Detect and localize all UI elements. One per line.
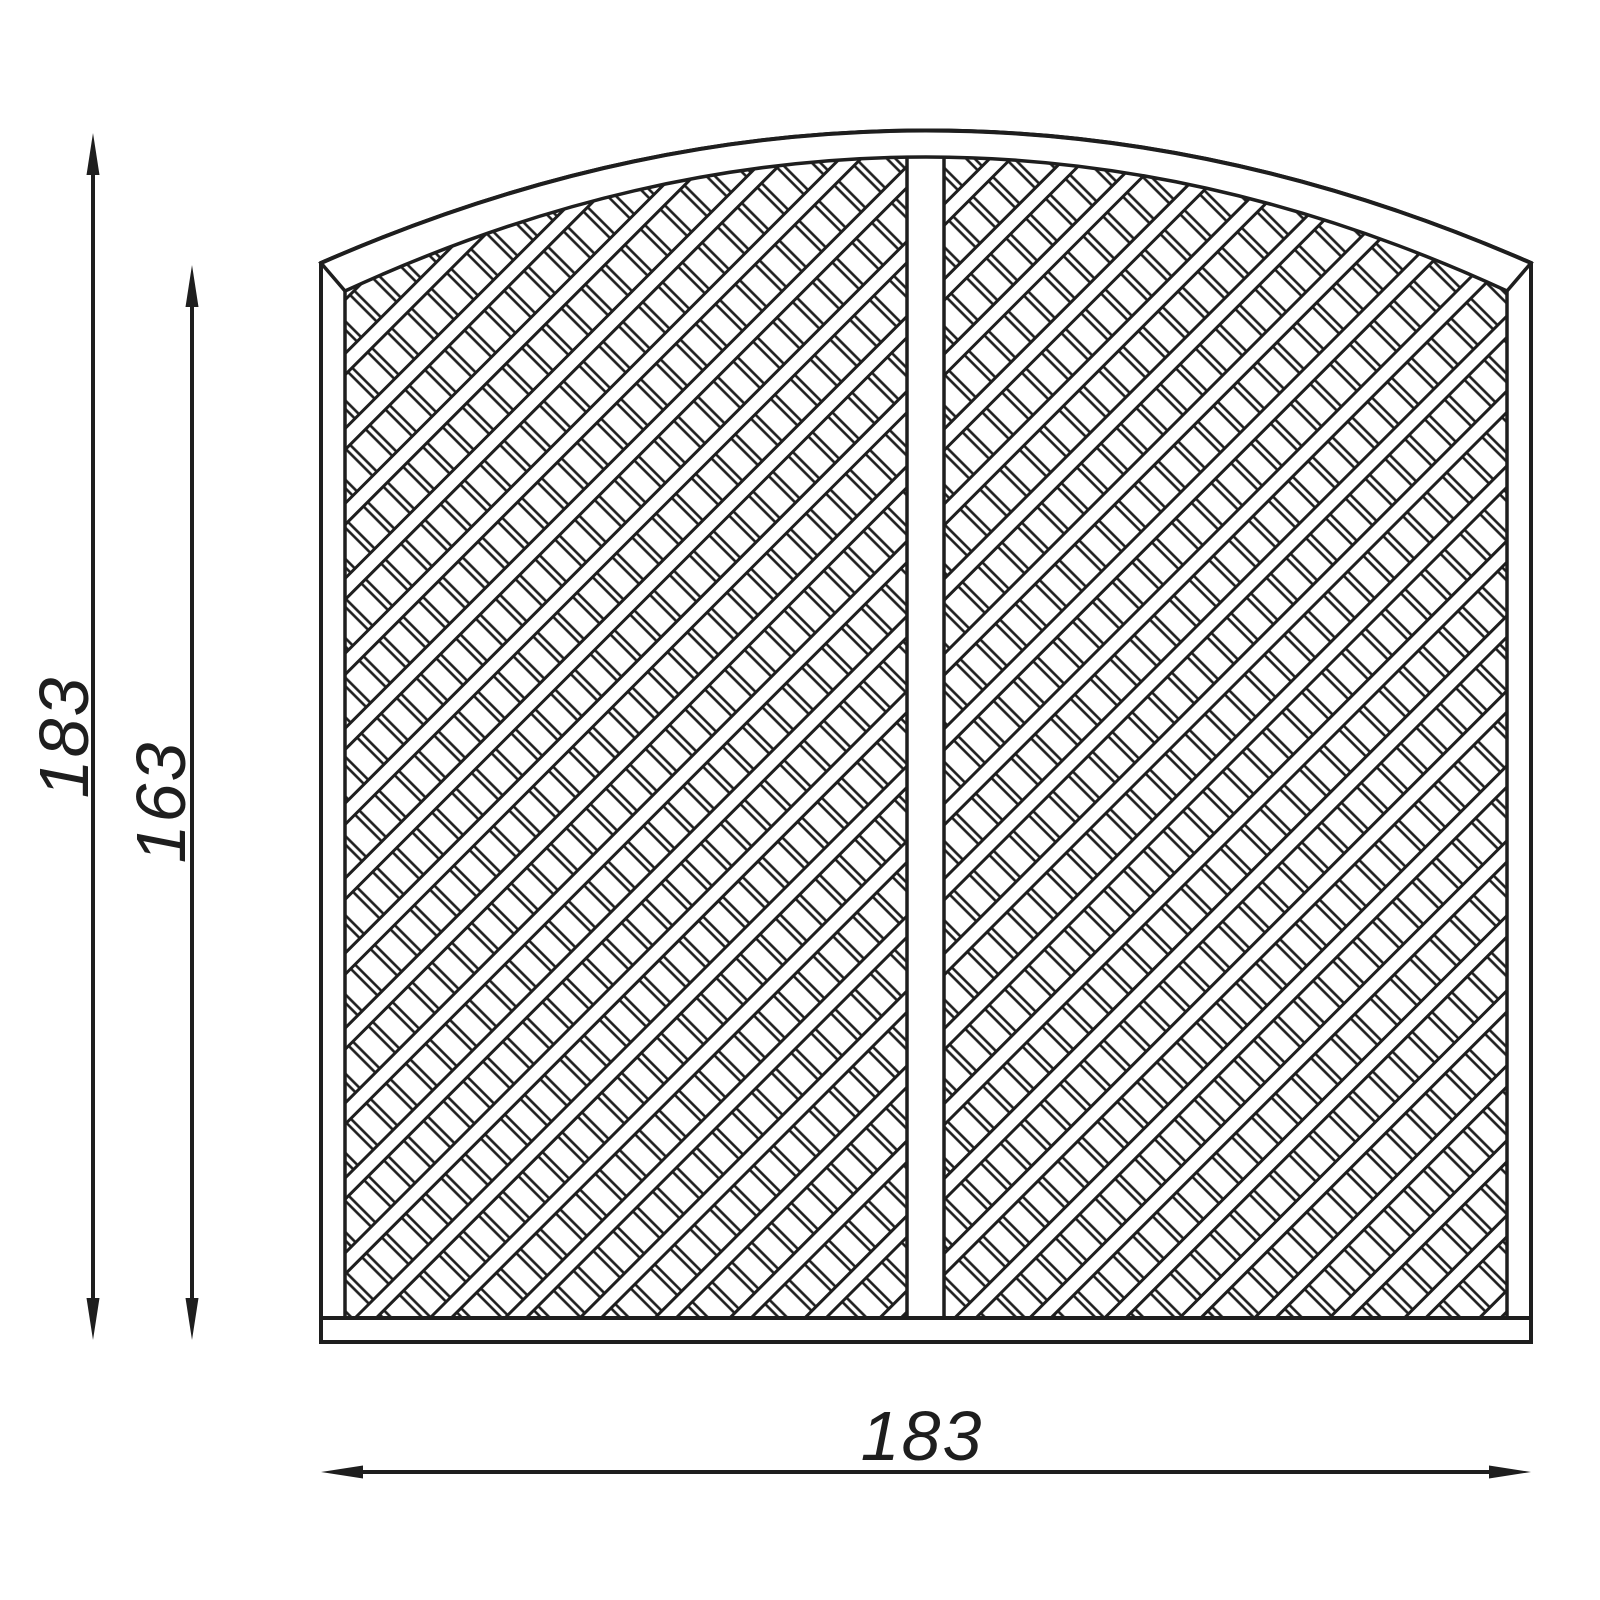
center-divider-batten xyxy=(907,150,944,1318)
bottom-rail xyxy=(321,1318,1531,1342)
drawing-canvas: 183 163 183 xyxy=(0,0,1600,1600)
fence-panel-drawing: 183 163 183 xyxy=(0,0,1600,1600)
dimension-label-overall-height: 183 xyxy=(25,676,103,799)
fence-panel xyxy=(321,20,1531,1342)
dimension-label-side-height: 163 xyxy=(122,741,200,864)
dimension-label-width: 183 xyxy=(861,1397,984,1475)
